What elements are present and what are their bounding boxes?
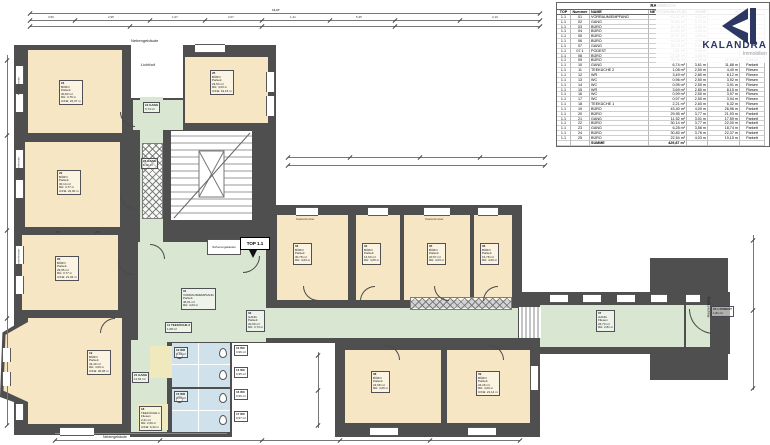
room-label-line: RH: 4,03 m [429,259,444,263]
room-label-line: 6,28 m² [143,164,156,168]
room-label-23: 23 GANG6,28 m² [141,158,158,169]
room-fill-02 [166,308,518,338]
window [651,294,667,303]
window [15,276,24,294]
dimension-value: 2,10 [492,15,498,19]
room-label-14: 14 WC0,95 m² [234,367,248,378]
room-label-07: 07GANGFliesen26,70 m²RH: 2,81 m [596,310,615,332]
room-label-16: 16 WC0,99 m² [234,389,248,400]
raumbuch-cell [740,141,765,146]
room-label-line: U/Flä: 22,00 m [59,190,79,194]
dimension-tick [518,438,523,443]
stair-steps [519,307,541,338]
raumbuch-cell [687,141,708,146]
room-label-line: 0,95 m² [236,373,246,377]
room-label-line: U/Flä: 6,32 m [141,426,160,430]
dimension-line [55,440,520,441]
dimension-line [30,26,540,27]
room-label-line: RH: 4,00 m [482,259,497,263]
room-label-line: 0,97 m² [236,417,246,421]
room-label-10: 10 GANG6,74 m² [143,102,160,113]
window [478,207,498,216]
dimension-line [288,165,545,166]
room-label-line: 0,96 m² [236,351,246,355]
entrance-arrow-icon [249,250,257,258]
dimension-tick [751,386,756,391]
kalandra-brand-text: KALANDRA [702,40,767,51]
window [550,294,568,303]
dimension-line [7,55,8,425]
room-label-line: 11,52 m² [134,378,147,382]
toilet-icon [219,415,227,425]
window [296,207,318,216]
dimension-tick [543,163,548,168]
window [2,348,11,362]
room-label-21: 21 GANG11,52 m² [132,372,149,383]
room-label-13: 13 WC0,96 m² [234,345,248,356]
room-label-line: RH: 4,03 m [183,304,214,308]
room-label-22: 22BÜROParkett30,14 m²RH: 3,77 mU/Flä: 22… [57,170,81,195]
window [60,427,94,436]
dimension-tick [538,24,543,29]
room-label-line: RH: 4,06 m [373,387,388,391]
raumbuch-cell: 429,87 m² [649,141,687,146]
dimension-value: 1,41 [290,15,296,19]
kalandra-sub-text: Immobilien [743,51,767,57]
wc-partition [198,343,199,387]
open-area [131,45,183,98]
wc-partition [172,410,230,411]
room-label-04: 04BÜROParkett14,60 m²RH: 4,05 m [362,243,381,265]
annex-text: Nebengebäude [131,38,158,43]
window-label-text: Kastenfenster [296,217,315,221]
room-label-line: U/Flä: 22,37 m [61,100,81,104]
toilet-icon [219,348,227,358]
window [15,180,24,198]
room-label-line: 3,69 m² [176,397,186,401]
window [195,44,225,53]
dimension-value: 5,35 [356,15,362,19]
room-label-19: 19BÜROParkett43,40 m²RH: 4,00 mU/Flä: 26… [87,350,111,375]
room-label-line: 3,49 m² [176,353,186,357]
dimension-tick [543,155,548,160]
room-label-20: 20BÜROParkett29,95 m²RH: 3,77 mU/Flä: 21… [55,256,79,281]
fuse-box-label: Sicherungskasten [207,239,241,255]
stairwell [171,131,252,220]
dimension-value: 14,07 [272,8,280,12]
toilet-icon [219,393,227,403]
room-label-line: 1,08 m² [167,328,190,332]
room-label-line: U/Flä: 26,96 m [89,370,109,374]
window [370,427,398,436]
room-label-03: 03BÜROParkett30,78 m²RH: 4,03 m [293,243,312,265]
room-label-24: 24BÜROParkett30,83 m²RH: 3,76 mU/Flä: 22… [59,80,83,105]
room-label-line: U/Flä: 21,14 m [478,391,498,395]
window [583,294,601,303]
window [2,372,11,386]
room-label-09: 09BÜROParkett26,26 m²RH: 4,00 mU/Flä: 21… [476,371,500,396]
room-label-05: 05BÜROParkett20,57 m²RH: 4,03 m [427,243,446,265]
raumbuch-cell [557,141,571,146]
raumbuch-cell: SUMME [590,141,649,146]
raumbuch-cell [708,141,740,146]
entrance-text: Hauseingang [706,297,710,318]
room-label-line: 6,74 m² [145,108,158,112]
glass-roof-hatch [142,143,163,219]
toilet-icon [219,370,227,380]
window [15,94,24,112]
window-label-text: Kastenfenster [16,249,20,268]
window [424,207,450,216]
dimension-tick [538,18,543,23]
wc-partition [172,364,230,365]
room-label-line: RH: 4,05 m [364,259,379,263]
room-label-18: 18TEEKÜCHE 1Fliesen2,21 m²RH: 2,60 mU/Fl… [139,406,162,431]
window [530,366,539,390]
room-label-line: 1,81 m² [713,312,732,316]
room-label-line: 0,99 m² [236,395,246,399]
dimension-value: 295 [95,230,100,234]
room-label-line: RH: 3,73 m [248,326,263,330]
window [617,294,635,303]
room-label-01: 01VORRAUM/EMPFANGParkett45,01 m²RH: 4,03… [181,288,216,310]
dimension-value: 2,95 [108,15,114,19]
dimension-line [30,13,540,14]
window [686,294,700,303]
entrance-marker: TOP 1.1 [240,237,270,250]
room-label-line: U/Flä: 21,93 m [57,276,77,280]
window-label-text: Kastenfenster [16,157,20,176]
room-label-line: RH: 2,81 m [598,326,613,330]
room-label-06: 06BÜROParkett16,78 m²RH: 4,00 m [480,243,499,265]
window [266,72,275,92]
dimension-value: 3,50 [48,15,54,19]
window [468,427,496,436]
dimension-line [288,157,545,158]
room-label-12: 12 WR3,49 m² [174,347,188,358]
kalandra-logo: KALANDRA Immobilien [656,3,769,63]
room-label-02: 02GANGParkett30,69 m²RH: 3,73 m [246,310,265,332]
floorplan-sheet: TOP 1.1Sicherungskasten01VORRAUM/EMPFANG… [0,0,770,445]
window [266,96,275,116]
wc-partition [198,389,199,432]
window [368,207,388,216]
room-label-11: 11 TEEKÜCHE 21,08 m² [165,322,192,333]
dimension-value: 1,07 [172,15,178,19]
raumbuch-sum-row: SUMME429,87 m² [557,141,769,146]
window-label-text: Kastenfenster [16,77,20,96]
room-label-17: 17 WC0,97 m² [234,411,248,422]
room-label-line: RH: 4,03 m [295,259,310,263]
window [15,404,24,420]
dimension-tick [538,11,543,16]
annex-text: Nebengebäude [103,435,127,439]
room-label-07.1: 07.1 PODEST1,81 m² [711,306,734,317]
room-label-line: U/Flä: 19,15 m [212,90,232,94]
dimension-value: 2,07 [228,15,234,19]
raumbuch-cell [571,141,590,146]
room-label-08: 08BÜROParkett22,68 m²RH: 4,06 m [371,371,390,393]
dimension-line [753,235,754,390]
dimension-value: 350 [55,230,60,234]
room-fill-08 [345,350,441,423]
lichthof-text: Lichthof [141,62,155,67]
room-label-25: 25BÜROParkett22,54 m²RH: 4,03 mU/Flä: 19… [210,70,234,95]
dimension-line [30,20,540,21]
dimension-tick [5,423,10,428]
room-fill-11 [150,346,172,378]
window-label-text: Kastenfenster [425,217,444,221]
room-label-15: 15 WR3,69 m² [174,391,188,402]
